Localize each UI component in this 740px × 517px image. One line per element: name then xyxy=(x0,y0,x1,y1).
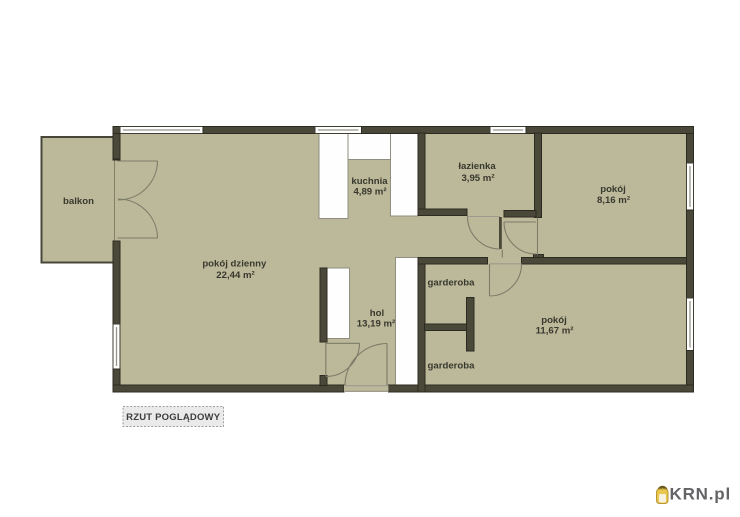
svg-text:13,19 m²: 13,19 m² xyxy=(357,319,395,330)
svg-text:kuchnia: kuchnia xyxy=(351,176,388,187)
svg-text:garderoba: garderoba xyxy=(428,277,476,288)
svg-text:pokój dzienny: pokój dzienny xyxy=(202,259,267,270)
svg-text:4,89 m²: 4,89 m² xyxy=(353,187,386,198)
svg-text:RZUT POGLĄDOWY: RZUT POGLĄDOWY xyxy=(126,412,221,423)
svg-text:22,44 m²: 22,44 m² xyxy=(216,270,254,281)
svg-text:garderoba: garderoba xyxy=(428,361,476,372)
svg-text:pokój: pokój xyxy=(600,184,626,195)
svg-text:8,16 m²: 8,16 m² xyxy=(597,195,630,206)
svg-text:KRN.pl: KRN.pl xyxy=(670,485,731,504)
svg-text:3,95 m²: 3,95 m² xyxy=(461,173,494,184)
svg-text:balkon: balkon xyxy=(63,196,94,207)
svg-text:łazienka: łazienka xyxy=(458,161,496,172)
svg-text:hol: hol xyxy=(370,308,384,319)
svg-text:pokój: pokój xyxy=(541,315,567,326)
svg-text:11,67 m²: 11,67 m² xyxy=(536,326,574,337)
